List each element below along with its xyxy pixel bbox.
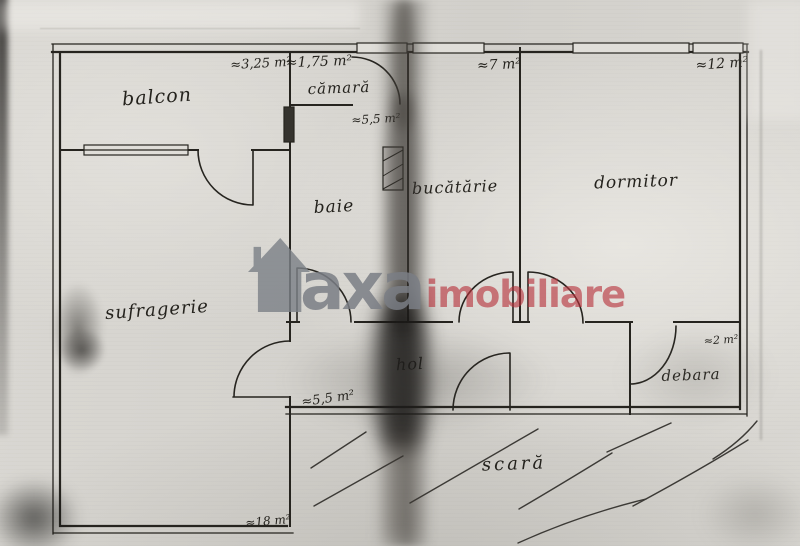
- room-label-scara: scară: [481, 452, 546, 475]
- door-balcon: [198, 150, 253, 205]
- window-camara: [357, 43, 407, 53]
- window-dormitor-2: [693, 43, 743, 53]
- watermark-brand-first: axa: [300, 261, 423, 312]
- area-label-debara: ≈2 m²: [703, 332, 738, 347]
- area-label-balcon: ≈3,25 m²: [230, 55, 292, 73]
- windows: [84, 43, 743, 190]
- area-label-bucatarie: ≈7 m²: [477, 56, 522, 74]
- door-entrance: [453, 353, 510, 410]
- room-label-dormitor: dormitor: [594, 171, 679, 194]
- room-label-debara: debara: [661, 365, 721, 385]
- window-baie-balcon: [284, 107, 294, 142]
- room-label-camara: cămară: [307, 78, 370, 98]
- window-bucatarie: [413, 43, 484, 53]
- room-label-baie: baie: [313, 196, 355, 218]
- stair-hatching: [311, 421, 757, 543]
- window-dormitor-1: [573, 43, 689, 53]
- watermark-brand-second: imobiliare: [426, 281, 626, 310]
- room-label-bucatarie: bucătărie: [412, 176, 499, 198]
- door-sufragerie: [233, 341, 290, 397]
- area-label-baie: ≈5,5 m²: [351, 111, 401, 128]
- scanned-floor-plan: balcon ≈3,25 m² cămară ≈1,75 m² baie ≈5,…: [0, 0, 800, 546]
- room-label-hol: hol: [395, 354, 424, 374]
- doors: [198, 57, 676, 410]
- area-label-camara: ≈1,75 m²: [286, 53, 353, 71]
- watermark: axa imobiliare: [248, 238, 625, 312]
